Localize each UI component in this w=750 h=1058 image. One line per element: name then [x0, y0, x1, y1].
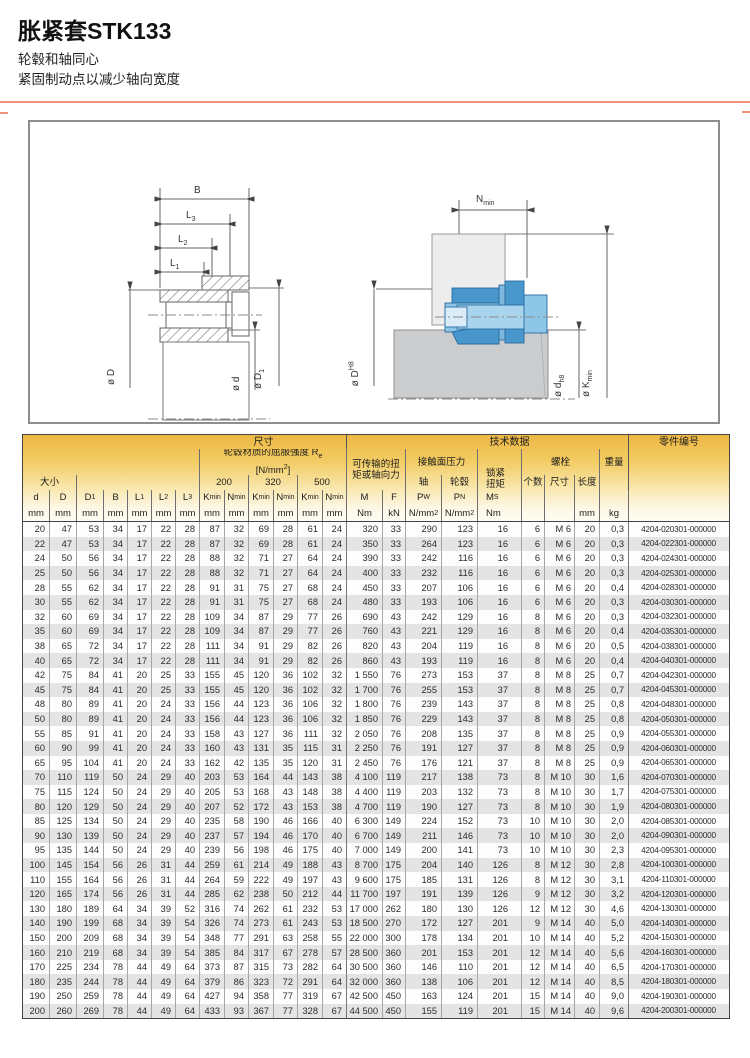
- table-cell: 67: [322, 1004, 346, 1019]
- table-cell: 24: [23, 551, 49, 566]
- table-cell: 40: [574, 989, 599, 1004]
- group-bolt-length: 长度: [574, 475, 599, 490]
- table-cell: 91: [199, 595, 224, 610]
- table-cell: 4204-042301-000000: [628, 668, 729, 683]
- table-row: 1502002096834395434877291632585522 00030…: [23, 931, 729, 946]
- table-cell: 3,1: [599, 872, 628, 887]
- table-cell: 9 600: [346, 872, 382, 887]
- table-cell: 8: [521, 726, 544, 741]
- table-row: 4065723417222811134912982268604319311916…: [23, 653, 729, 668]
- table-cell: 28: [273, 522, 297, 537]
- table-cell: M 12: [544, 887, 574, 902]
- table-cell: 64: [103, 901, 127, 916]
- table-cell: 46: [273, 843, 297, 858]
- table-cell: 41: [103, 756, 127, 771]
- column-symbol: F: [382, 490, 405, 505]
- table-cell: 197: [382, 887, 405, 902]
- table-cell: 278: [297, 945, 322, 960]
- table-cell: 0,8: [599, 697, 628, 712]
- table-cell: 29: [273, 624, 297, 639]
- table-cell: 131: [248, 741, 273, 756]
- table-cell: 24: [127, 799, 151, 814]
- table-cell: 8: [521, 624, 544, 639]
- table-cell: 44 500: [346, 1004, 382, 1019]
- table-cell: 40: [175, 785, 199, 800]
- table-cell: 30: [574, 858, 599, 873]
- table-cell: 64: [175, 974, 199, 989]
- table-cell: 219: [76, 945, 103, 960]
- table-cell: 207: [405, 580, 441, 595]
- table-cell: 270: [382, 916, 405, 931]
- table-cell: 17: [127, 624, 151, 639]
- table-cell: 8: [521, 683, 544, 698]
- table-cell: 37: [477, 668, 521, 683]
- table-cell: 49: [151, 1004, 175, 1019]
- table-cell: 0,3: [599, 610, 628, 625]
- table-cell: 33: [382, 595, 405, 610]
- table-cell: 99: [76, 741, 103, 756]
- table-cell: 115: [49, 785, 76, 800]
- table-cell: 34: [103, 624, 127, 639]
- dim-label-Nmin: Nmin: [476, 194, 495, 207]
- table-cell: 91: [248, 639, 273, 654]
- table-cell: 33: [175, 726, 199, 741]
- table-cell: 22: [151, 624, 175, 639]
- table-cell: 78: [103, 1004, 127, 1019]
- table-cell: 24: [127, 770, 151, 785]
- table-cell: 175: [382, 858, 405, 873]
- table-cell: 25: [151, 683, 175, 698]
- table-cell: 190: [405, 799, 441, 814]
- table-cell: 43: [322, 872, 346, 887]
- table-cell: 82: [297, 639, 322, 654]
- table-cell: 62: [76, 580, 103, 595]
- table-cell: 29: [151, 843, 175, 858]
- table-cell: 49: [151, 989, 175, 1004]
- table-cell: M 14: [544, 1004, 574, 1019]
- table-cell: 34: [127, 931, 151, 946]
- table-cell: 209: [76, 931, 103, 946]
- table-cell: 2 450: [346, 756, 382, 771]
- table-cell: 40: [322, 828, 346, 843]
- table-cell: 185: [405, 872, 441, 887]
- table-cell: 59: [224, 872, 248, 887]
- section-size: 尺寸: [23, 435, 346, 449]
- table-cell: 6: [521, 566, 544, 581]
- table-cell: 38: [23, 639, 49, 654]
- table-cell: 56: [103, 887, 127, 902]
- table-cell: 26: [127, 887, 151, 902]
- table-cell: 124: [441, 989, 477, 1004]
- table-cell: 61: [297, 522, 322, 537]
- table-cell: 44: [175, 887, 199, 902]
- table-cell: 75: [49, 683, 76, 698]
- table-cell: 24: [151, 712, 175, 727]
- group-size-label: 大小: [23, 475, 76, 490]
- table-cell: 170: [297, 828, 322, 843]
- table-cell: 198: [248, 843, 273, 858]
- table-cell: 33: [382, 566, 405, 581]
- table-cell: 29: [151, 814, 175, 829]
- table-cell: 29: [151, 799, 175, 814]
- table-cell: 53: [224, 770, 248, 785]
- column-symbol: M: [346, 490, 382, 505]
- table-cell: 8: [521, 639, 544, 654]
- table-cell: 37: [477, 741, 521, 756]
- table-cell: 30 500: [346, 960, 382, 975]
- table-header: 尺寸 技术数据 零件编号 轮毂材质的屈服强度 Re [N/mm2] 可传输的扭 …: [23, 435, 729, 522]
- table-cell: 29: [273, 610, 297, 625]
- table-cell: 29: [273, 653, 297, 668]
- table-cell: 4204-045301-000000: [628, 683, 729, 698]
- table-cell: 116: [441, 566, 477, 581]
- table-cell: 4204-085301-000000: [628, 814, 729, 829]
- table-cell: 87: [248, 624, 273, 639]
- table-cell: 385: [199, 945, 224, 960]
- table-cell: 16: [477, 551, 521, 566]
- dim-label-B: B: [194, 185, 201, 196]
- table-cell: 33: [175, 697, 199, 712]
- table-cell: 50: [103, 799, 127, 814]
- table-cell: 163: [405, 989, 441, 1004]
- table-cell: 34: [224, 610, 248, 625]
- table-cell: 201: [477, 989, 521, 1004]
- table-cell: 4204-022301-000000: [628, 537, 729, 552]
- table-cell: 94: [224, 989, 248, 1004]
- table-cell: 33: [382, 537, 405, 552]
- table-cell: 4 100: [346, 770, 382, 785]
- table-cell: 111: [199, 653, 224, 668]
- table-cell: 24: [151, 697, 175, 712]
- table-cell: 194: [248, 828, 273, 843]
- table-cell: 32: [23, 610, 49, 625]
- table-cell: 214: [248, 858, 273, 873]
- table-cell: 234: [76, 960, 103, 975]
- table-cell: 49: [151, 960, 175, 975]
- table-cell: 64: [297, 551, 322, 566]
- table-cell: 160: [199, 741, 224, 756]
- table-cell: 180: [23, 974, 49, 989]
- table-cell: 238: [248, 887, 273, 902]
- table-cell: 37: [477, 683, 521, 698]
- table-cell: 4204-030301-000000: [628, 595, 729, 610]
- table-cell: 16: [477, 610, 521, 625]
- table-cell: 239: [199, 843, 224, 858]
- table-cell: 239: [405, 697, 441, 712]
- table-cell: 33: [382, 522, 405, 537]
- table-cell: 860: [346, 653, 382, 668]
- table-cell: 8: [521, 668, 544, 683]
- table-cell: 44: [127, 1004, 151, 1019]
- column-symbol: Nmin: [224, 490, 248, 505]
- table-cell: 191: [405, 887, 441, 902]
- column-symbol: MS: [477, 490, 521, 505]
- table-cell: 0,4: [599, 653, 628, 668]
- table-cell: M 8: [544, 756, 574, 771]
- right-edge-mark: [742, 111, 750, 113]
- table-cell: 39: [151, 945, 175, 960]
- table-row: 95135144502429402395619846175407 0001492…: [23, 843, 729, 858]
- table-cell: 22: [151, 639, 175, 654]
- table-cell: 4204-160301-000000: [628, 945, 729, 960]
- table-cell: 40: [574, 916, 599, 931]
- table-cell: 34: [103, 595, 127, 610]
- table-cell: 74: [224, 901, 248, 916]
- table-cell: 68: [103, 931, 127, 946]
- table-cell: 232: [297, 901, 322, 916]
- table-cell: 70: [23, 770, 49, 785]
- table-cell: 4 700: [346, 799, 382, 814]
- table-cell: 50: [103, 770, 127, 785]
- table-cell: 32: [322, 697, 346, 712]
- table-cell: 29: [273, 639, 297, 654]
- table-cell: 153: [441, 668, 477, 683]
- table-cell: 190: [49, 916, 76, 931]
- column-symbol: [574, 490, 599, 505]
- table-cell: 36: [273, 726, 297, 741]
- table-cell: 110: [49, 770, 76, 785]
- table-cell: 5,6: [599, 945, 628, 960]
- table-cell: M 12: [544, 872, 574, 887]
- table-cell: 61: [273, 901, 297, 916]
- table-cell: 4204-190301-000000: [628, 989, 729, 1004]
- table-cell: 52: [175, 901, 199, 916]
- table-cell: 360: [382, 960, 405, 975]
- table-cell: 77: [224, 931, 248, 946]
- table-cell: 17: [127, 537, 151, 552]
- table-cell: 5,2: [599, 931, 628, 946]
- table-cell: 64: [175, 989, 199, 1004]
- table-cell: 146: [405, 960, 441, 975]
- table-row: 1802352447844496437986323722916432 00036…: [23, 974, 729, 989]
- table-cell: 221: [405, 624, 441, 639]
- table-cell: 62: [76, 595, 103, 610]
- table-cell: 348: [199, 931, 224, 946]
- table-cell: 450: [382, 989, 405, 1004]
- table-cell: 49: [273, 872, 297, 887]
- table-cell: 42: [224, 756, 248, 771]
- table-cell: 123: [441, 522, 477, 537]
- table-cell: 60: [49, 624, 76, 639]
- column-unit: mm: [49, 505, 76, 521]
- table-cell: 31: [151, 887, 175, 902]
- table-cell: 16: [477, 639, 521, 654]
- column-symbol: PW: [405, 490, 441, 505]
- table-cell: 20: [23, 522, 49, 537]
- table-cell: 76: [382, 697, 405, 712]
- table-cell: 28: [23, 580, 49, 595]
- table-cell: 71: [248, 566, 273, 581]
- table-cell: 232: [405, 566, 441, 581]
- table-cell: 323: [248, 974, 273, 989]
- table-cell: 34: [127, 901, 151, 916]
- column-unit: mm: [297, 505, 322, 521]
- table-cell: 25: [574, 741, 599, 756]
- table-cell: 8: [521, 799, 544, 814]
- table-cell: 4204-150301-000000: [628, 931, 729, 946]
- table-cell: 80: [49, 697, 76, 712]
- table-cell: 47: [49, 522, 76, 537]
- table-row: 110155164562631442645922249197439 600175…: [23, 872, 729, 887]
- table-cell: 75: [49, 668, 76, 683]
- table-cell: 4204-048301-000000: [628, 697, 729, 712]
- table-cell: 28: [175, 595, 199, 610]
- table-cell: 27: [273, 595, 297, 610]
- table-cell: 126: [477, 901, 521, 916]
- table-cell: 4204-060301-000000: [628, 741, 729, 756]
- table-cell: 119: [382, 785, 405, 800]
- table-cell: 119: [76, 770, 103, 785]
- table-cell: 31: [224, 580, 248, 595]
- table-cell: 120: [248, 683, 273, 698]
- table-cell: M 6: [544, 595, 574, 610]
- table-cell: 1 800: [346, 697, 382, 712]
- table-cell: 16: [477, 537, 521, 552]
- table-cell: M 10: [544, 843, 574, 858]
- table-cell: 135: [49, 843, 76, 858]
- table-cell: 170: [23, 960, 49, 975]
- table-cell: 259: [76, 989, 103, 1004]
- table-cell: 48: [23, 697, 49, 712]
- table-cell: 28: [175, 566, 199, 581]
- table-cell: 102: [297, 668, 322, 683]
- table-cell: 106: [441, 595, 477, 610]
- table-cell: 32: [224, 522, 248, 537]
- table-cell: 139: [441, 887, 477, 902]
- table-cell: 4204-055301-000000: [628, 726, 729, 741]
- table-cell: 28: [175, 522, 199, 537]
- table-cell: 17: [127, 595, 151, 610]
- table-cell: 0,3: [599, 551, 628, 566]
- table-cell: 28: [175, 624, 199, 639]
- table-cell: 37: [477, 697, 521, 712]
- table-cell: 69: [248, 537, 273, 552]
- table-cell: 168: [248, 785, 273, 800]
- table-cell: 8: [521, 756, 544, 771]
- table-cell: 64: [322, 960, 346, 975]
- table-cell: 8 700: [346, 858, 382, 873]
- table-cell: 140: [23, 916, 49, 931]
- table-cell: 164: [248, 770, 273, 785]
- table-cell: 72: [273, 974, 297, 989]
- table-cell: 76: [382, 756, 405, 771]
- table-cell: 20: [127, 697, 151, 712]
- table-cell: 20: [574, 537, 599, 552]
- table-cell: 2,8: [599, 858, 628, 873]
- table-cell: M 14: [544, 974, 574, 989]
- table-cell: 8: [521, 653, 544, 668]
- table-cell: 41: [103, 712, 127, 727]
- table-cell: 4,6: [599, 901, 628, 916]
- table-cell: 2,3: [599, 843, 628, 858]
- column-unit: mm: [322, 505, 346, 521]
- table-cell: 106: [441, 580, 477, 595]
- table-cell: 85: [49, 726, 76, 741]
- table-row: 2450563417222888327127642439033242116166…: [23, 551, 729, 566]
- table-cell: 68: [297, 595, 322, 610]
- table-cell: 109: [199, 624, 224, 639]
- table-cell: 4204-095301-000000: [628, 843, 729, 858]
- column-symbol: Nmin: [322, 490, 346, 505]
- table-cell: 300: [382, 931, 405, 946]
- table-row: 3260693417222810934872977266904324212916…: [23, 610, 729, 625]
- table-body: 2047533417222887326928612432033290123166…: [23, 522, 729, 1018]
- table-cell: 235: [49, 974, 76, 989]
- table-cell: 201: [477, 945, 521, 960]
- column-symbol: D: [49, 490, 76, 505]
- table-cell: 319: [297, 989, 322, 1004]
- table-cell: 31: [151, 872, 175, 887]
- group-yield-unit: [N/mm2]: [256, 462, 291, 475]
- table-cell: 143: [441, 712, 477, 727]
- table-cell: 34: [103, 580, 127, 595]
- table-row: 1602102196834395438584317672785728 50036…: [23, 945, 729, 960]
- table-cell: 127: [248, 726, 273, 741]
- column-unit: mm: [175, 505, 199, 521]
- table-cell: 54: [175, 916, 199, 931]
- table-cell: 24: [322, 522, 346, 537]
- page-title: 胀紧套STK133: [18, 12, 171, 46]
- table-cell: 4204-070301-000000: [628, 770, 729, 785]
- table-row: 85125134502429402355819046166406 3001492…: [23, 814, 729, 829]
- table-cell: 120: [248, 668, 273, 683]
- table-cell: 188: [297, 858, 322, 873]
- group-bolt-size: 尺寸: [544, 475, 574, 490]
- table-cell: 201: [477, 1004, 521, 1019]
- column-unit: Nm: [346, 505, 382, 521]
- table-cell: 89: [76, 712, 103, 727]
- table-cell: 16: [477, 653, 521, 668]
- table-row: 609099412024331604313135115312 250761911…: [23, 741, 729, 756]
- table-cell: 4 400: [346, 785, 382, 800]
- table-cell: 80: [23, 799, 49, 814]
- table-row: 1401901996834395432674273612435318 50027…: [23, 916, 729, 931]
- table-cell: 207: [199, 799, 224, 814]
- table-cell: 140: [441, 858, 477, 873]
- table-cell: 690: [346, 610, 382, 625]
- table-cell: 87: [199, 537, 224, 552]
- table-cell: 34: [127, 945, 151, 960]
- table-cell: 65: [23, 756, 49, 771]
- table-cell: 0,9: [599, 726, 628, 741]
- table-cell: 360: [382, 974, 405, 989]
- table-cell: 12: [521, 960, 544, 975]
- table-cell: 75: [23, 785, 49, 800]
- table-cell: 34: [103, 653, 127, 668]
- table-cell: 91: [248, 653, 273, 668]
- table-cell: 0,3: [599, 595, 628, 610]
- table-cell: 1 850: [346, 712, 382, 727]
- table-cell: 30: [574, 828, 599, 843]
- table-cell: 53: [224, 785, 248, 800]
- table-cell: 4204-200301-000000: [628, 1004, 729, 1019]
- table-cell: 358: [248, 989, 273, 1004]
- table-cell: 55: [49, 595, 76, 610]
- table-cell: 90: [23, 828, 49, 843]
- table-row: 90130139502429402375719446170406 7001492…: [23, 828, 729, 843]
- table-cell: 45: [224, 668, 248, 683]
- column-symbol: B: [103, 490, 127, 505]
- table-cell: 20: [574, 639, 599, 654]
- table-cell: 126: [477, 887, 521, 902]
- table-cell: 2,0: [599, 828, 628, 843]
- table-cell: 64: [175, 1004, 199, 1019]
- table-cell: 26: [322, 624, 346, 639]
- table-cell: 119: [441, 639, 477, 654]
- table-cell: 49: [151, 974, 175, 989]
- table-cell: 166: [297, 814, 322, 829]
- table-cell: 282: [297, 960, 322, 975]
